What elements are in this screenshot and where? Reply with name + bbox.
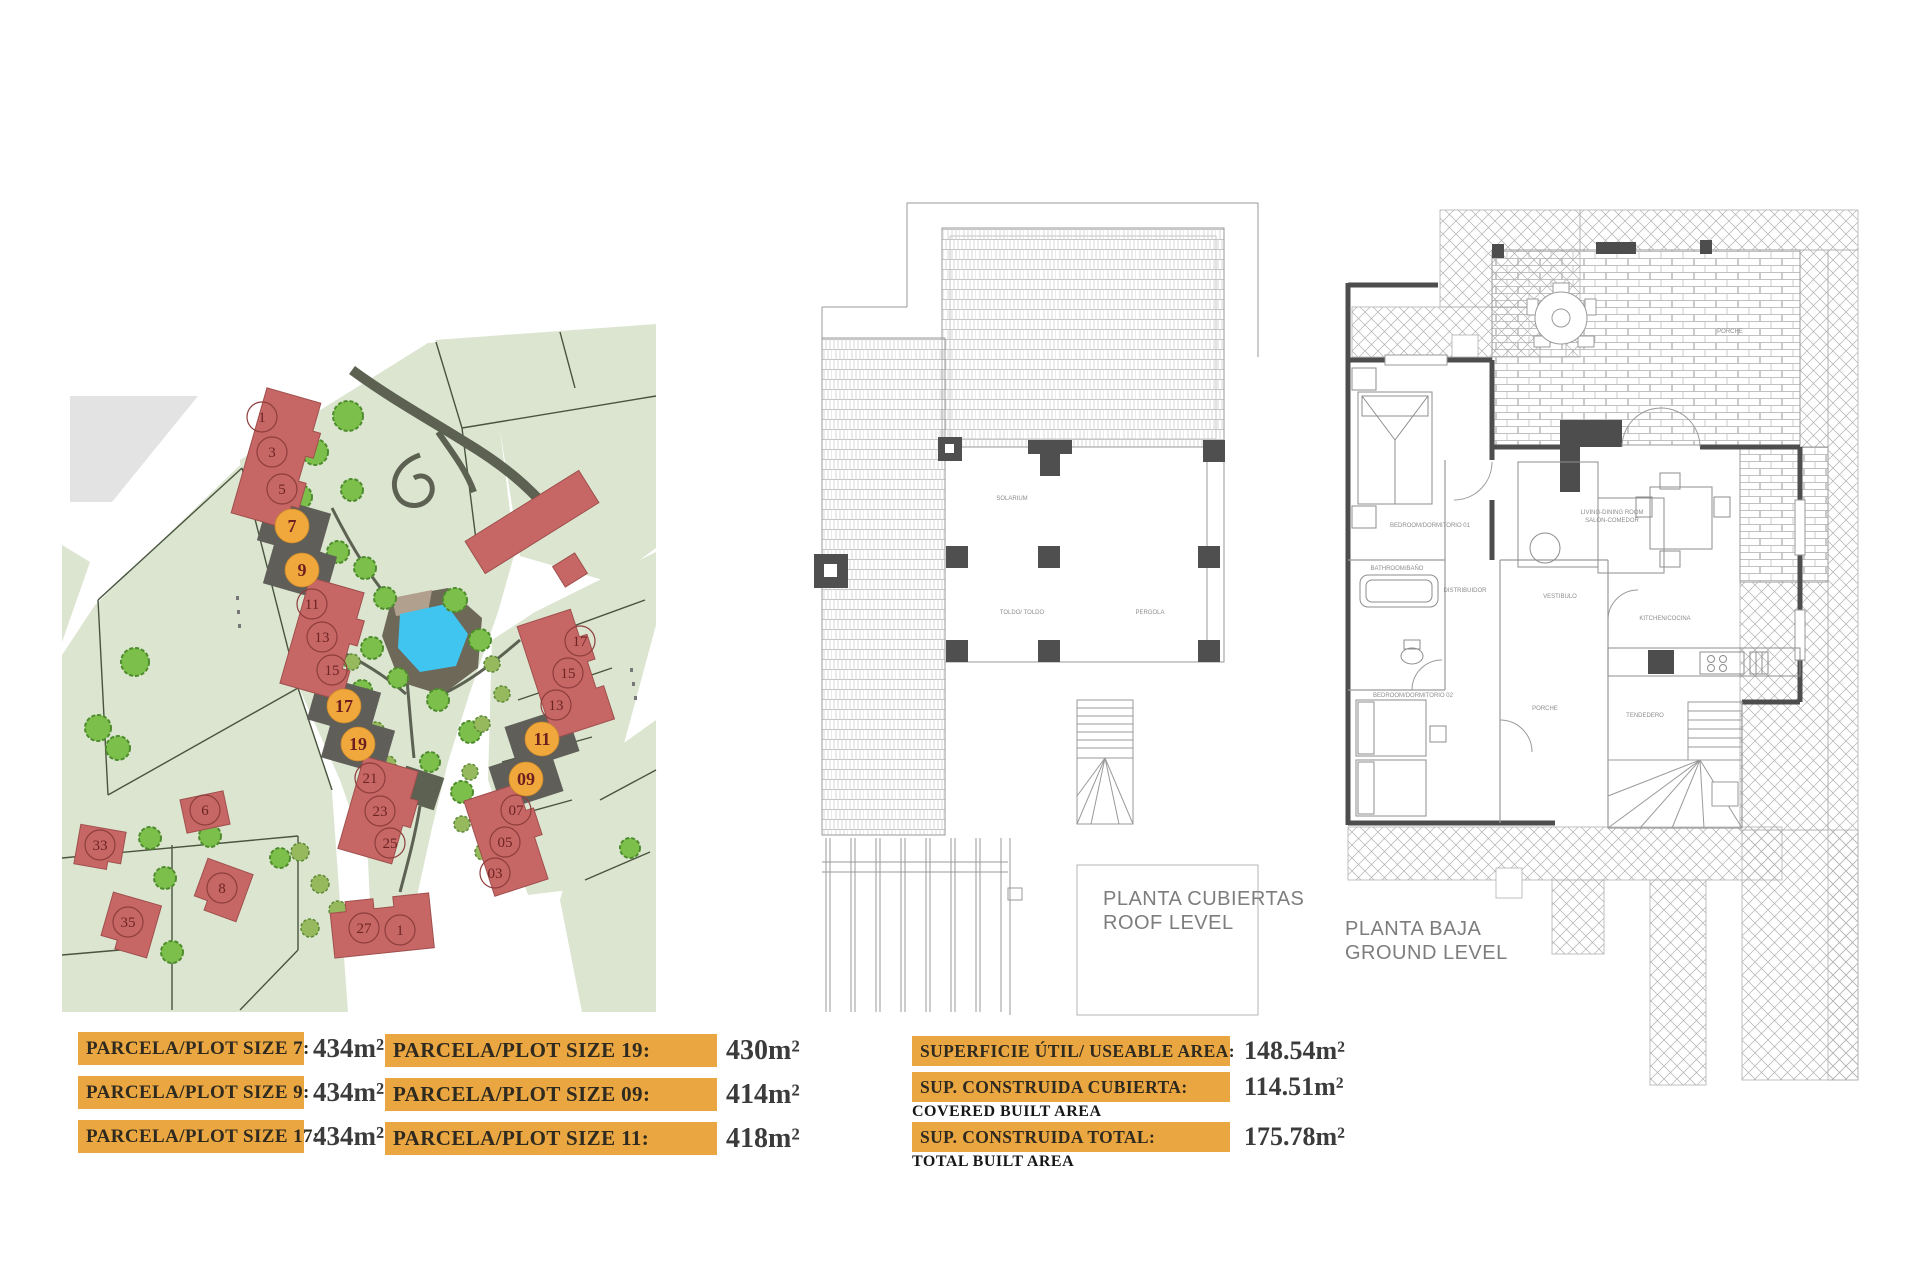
roof-caption-es: PLANTA CUBIERTAS — [1103, 888, 1304, 910]
plot-number: 25 — [383, 836, 398, 852]
bedroom2-label: BEDROOM/DORMITORIO 02 — [1373, 693, 1454, 699]
area-row: SUPERFICIE ÚTIL/ USEABLE AREA: 148.54m² — [912, 1036, 1345, 1066]
plot-number: 15 — [325, 663, 340, 679]
area-value: 175.78m² — [1244, 1122, 1345, 1152]
area-label: SUPERFICIE ÚTIL/ USEABLE AREA: — [912, 1036, 1230, 1066]
area-row: SUP. CONSTRUIDA CUBIERTA: 114.51m² — [912, 1072, 1344, 1102]
solarium-label: SOLARIUM — [996, 496, 1027, 502]
plot-number: 35 — [121, 915, 136, 931]
ground-caption-es: PLANTA BAJA — [1345, 918, 1481, 940]
toldo-label: TOLDO/ TOLDO — [1000, 610, 1045, 616]
pergola-label: PERGOLA — [1135, 610, 1164, 616]
plot-number: 1 — [258, 410, 266, 426]
roof-plan: SOLARIUM TOLDO/ TOLDO PERGOLA PLANTA CUB… — [814, 203, 1304, 1015]
plot-number: 15 — [561, 666, 576, 682]
plot-badge: 11 — [533, 729, 550, 749]
plot-badge: 17 — [335, 696, 353, 716]
hall-label: DISTRIBUIDOR — [1443, 588, 1487, 594]
roof-tiles-main — [942, 228, 1224, 447]
roof-caption-en: ROOF LEVEL — [1103, 912, 1234, 934]
area-row: SUP. CONSTRUIDA TOTAL: 175.78m² — [912, 1122, 1345, 1152]
plot-size-value: 414m² — [726, 1079, 800, 1111]
living-label-2: SALON-COMEDOR — [1585, 518, 1639, 524]
plot-number: 5 — [278, 482, 286, 498]
area-sublabel: COVERED BUILT AREA — [912, 1103, 1102, 1121]
plot-number: 13 — [315, 630, 330, 646]
pergola-slats — [822, 838, 1022, 1015]
bedroom1-label: BEDROOM/DORMITORIO 01 — [1390, 523, 1471, 529]
plot-number: 07 — [509, 803, 525, 819]
plot-size-label: PARCELA/PLOT SIZE 09: — [385, 1078, 717, 1111]
plot-size-label: PARCELA/PLOT SIZE 19: — [385, 1034, 717, 1067]
plot-number: 8 — [218, 881, 226, 897]
area-value: 114.51m² — [1244, 1072, 1344, 1102]
plot-size-row: PARCELA/PLOT SIZE 09: 414m² — [385, 1078, 800, 1111]
window — [1795, 500, 1805, 555]
vestibule-label: VESTIBULO — [1543, 594, 1577, 600]
laundry-label: TENDEDERO — [1626, 713, 1664, 719]
gray-area — [70, 396, 198, 502]
plot-number: 23 — [373, 804, 388, 820]
area-label: SUP. CONSTRUIDA CUBIERTA: — [912, 1072, 1230, 1102]
chimney-cap — [945, 444, 954, 453]
plot-number: 21 — [363, 771, 378, 787]
plot-number: 1 — [396, 923, 404, 939]
plot-badge: 09 — [517, 769, 535, 789]
plot-size-row: PARCELA/PLOT SIZE 11: 418m² — [385, 1122, 800, 1155]
plot-size-label: PARCELA/PLOT SIZE 11: — [385, 1122, 717, 1155]
chimney-cap — [824, 564, 837, 577]
kitchen-label: KITCHEN/COCINA — [1639, 616, 1690, 622]
door-arcs — [1412, 408, 1700, 752]
plot-size-value: 434m² — [313, 1121, 384, 1152]
site-plan-map: 1 3 5 11 13 15 21 23 25 27 1 17 15 13 07… — [62, 324, 656, 1012]
porch-top-label: PORCHE — [1717, 329, 1743, 335]
page: 1 3 5 11 13 15 21 23 25 27 1 17 15 13 07… — [0, 0, 1920, 1280]
wall-blocks — [1560, 420, 1622, 492]
plot-size-value: 418m² — [726, 1123, 800, 1155]
ground-stairs — [1608, 702, 1742, 828]
bath-label: BATHROOM/BAÑO — [1371, 565, 1424, 572]
plot-number: 27 — [357, 921, 373, 937]
window — [1385, 355, 1447, 365]
plot-size-label: PARCELA/PLOT SIZE 7: — [78, 1032, 304, 1065]
plot-number: 17 — [573, 634, 589, 650]
plot-size-label: PARCELA/PLOT SIZE 9: — [78, 1076, 304, 1109]
plot-number: 13 — [549, 698, 564, 714]
plot-size-value: 430m² — [726, 1035, 800, 1067]
plot-number: 33 — [93, 838, 108, 854]
plot-badge: 9 — [298, 560, 307, 580]
ground-plan: BEDROOM/DORMITORIO 01 LIVING-DINING ROOM… — [1345, 210, 1858, 1085]
plot-size-row: PARCELA/PLOT SIZE 17: 434m² — [78, 1120, 384, 1153]
plot-size-row: PARCELA/PLOT SIZE 7: 434m² — [78, 1032, 384, 1065]
porch-bottom-label: PORCHE — [1532, 706, 1558, 712]
plot-number: 11 — [305, 597, 319, 613]
area-value: 148.54m² — [1244, 1036, 1345, 1066]
plot-badge: 19 — [349, 734, 367, 754]
plot-size-value: 434m² — [313, 1033, 384, 1064]
solarium-area — [945, 447, 1224, 662]
plot-number: 6 — [201, 803, 209, 819]
plot-number: 03 — [488, 866, 503, 882]
plot-size-value: 434m² — [313, 1077, 384, 1108]
plot-size-row: PARCELA/PLOT SIZE 19: 430m² — [385, 1034, 800, 1067]
roof-stairs — [1077, 700, 1133, 824]
plot-size-label: PARCELA/PLOT SIZE 17: — [78, 1120, 304, 1153]
area-sublabel: TOTAL BUILT AREA — [912, 1153, 1074, 1171]
ground-caption-en: GROUND LEVEL — [1345, 942, 1508, 964]
plot-size-row: PARCELA/PLOT SIZE 9: 434m² — [78, 1076, 384, 1109]
kitchen-appliance — [1648, 650, 1674, 674]
plot-number: 3 — [268, 445, 276, 461]
plot-number: 05 — [498, 835, 513, 851]
area-label: SUP. CONSTRUIDA TOTAL: — [912, 1122, 1230, 1152]
plot-badge: 7 — [288, 516, 297, 536]
living-label: LIVING-DINING ROOM — [1580, 510, 1643, 516]
